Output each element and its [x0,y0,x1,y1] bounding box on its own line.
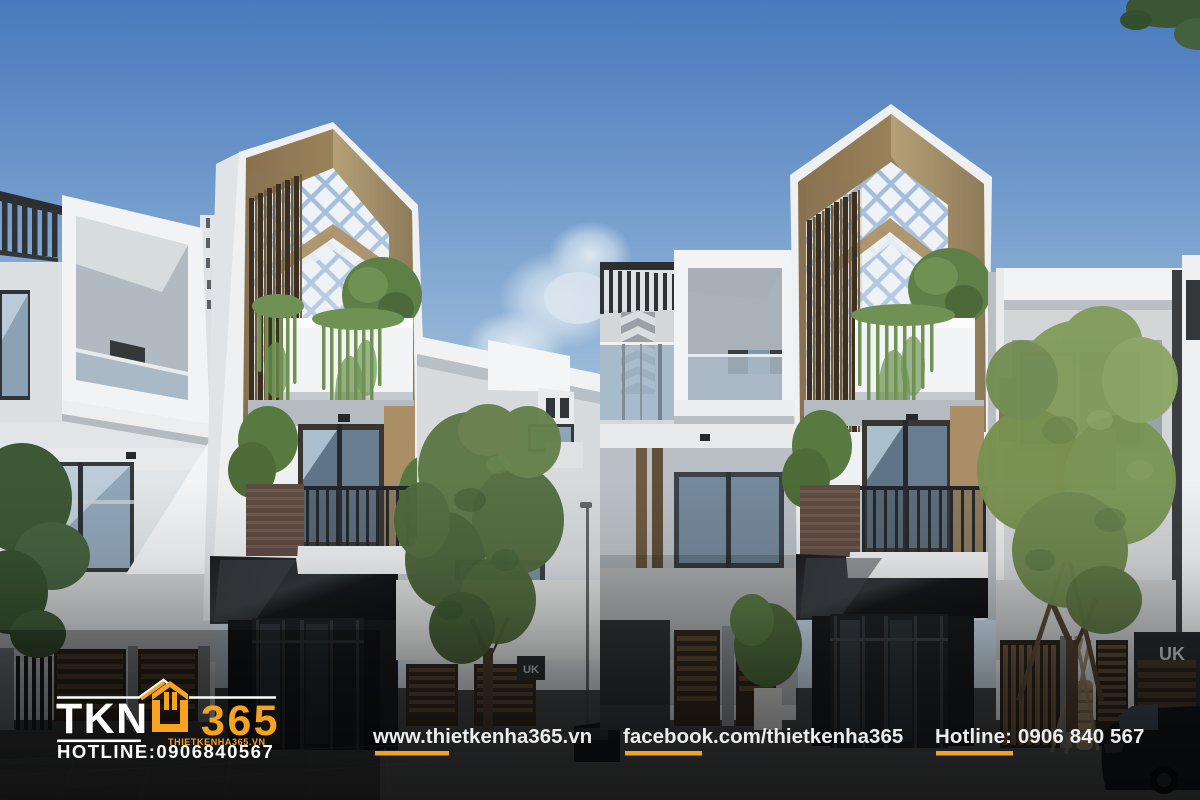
svg-text:TKN: TKN [56,695,149,743]
svg-text:Hotline: 0906 840 567: Hotline: 0906 840 567 [935,725,1145,748]
svg-text:HOTLINE:0906840567: HOTLINE:0906840567 [57,741,274,762]
svg-text:www.thietkenha365.vn: www.thietkenha365.vn [372,725,592,748]
svg-text:facebook.com/thietkenha365: facebook.com/thietkenha365 [623,725,903,748]
